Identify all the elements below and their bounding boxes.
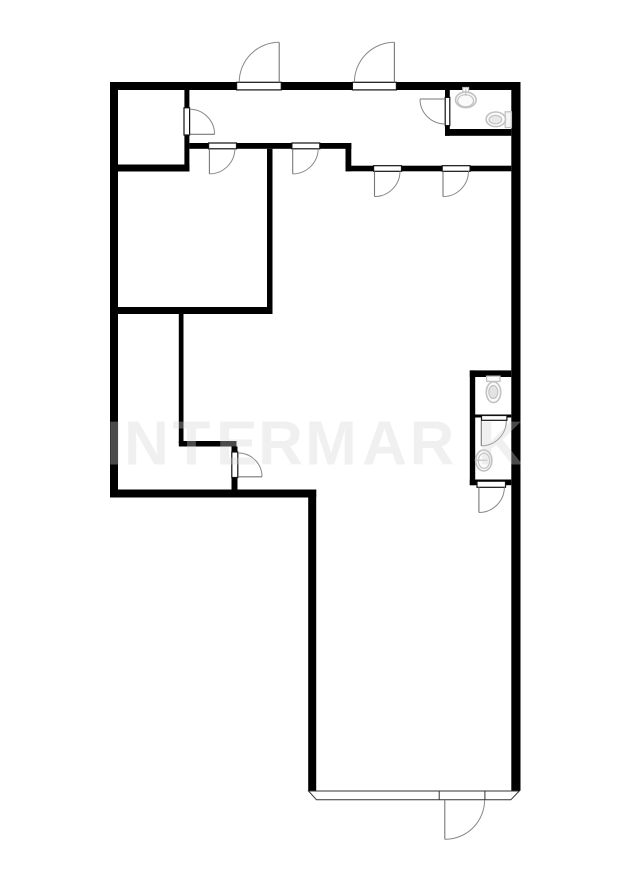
svg-text:E: E <box>216 410 257 479</box>
svg-text:R: R <box>410 410 455 479</box>
svg-text:M: M <box>305 410 357 479</box>
svg-text:I: I <box>106 410 123 479</box>
svg-text:N: N <box>124 410 169 479</box>
svg-text:R: R <box>258 410 303 479</box>
svg-text:A: A <box>362 410 407 479</box>
svg-text:K: K <box>478 410 523 479</box>
svg-text:T: T <box>173 410 211 479</box>
